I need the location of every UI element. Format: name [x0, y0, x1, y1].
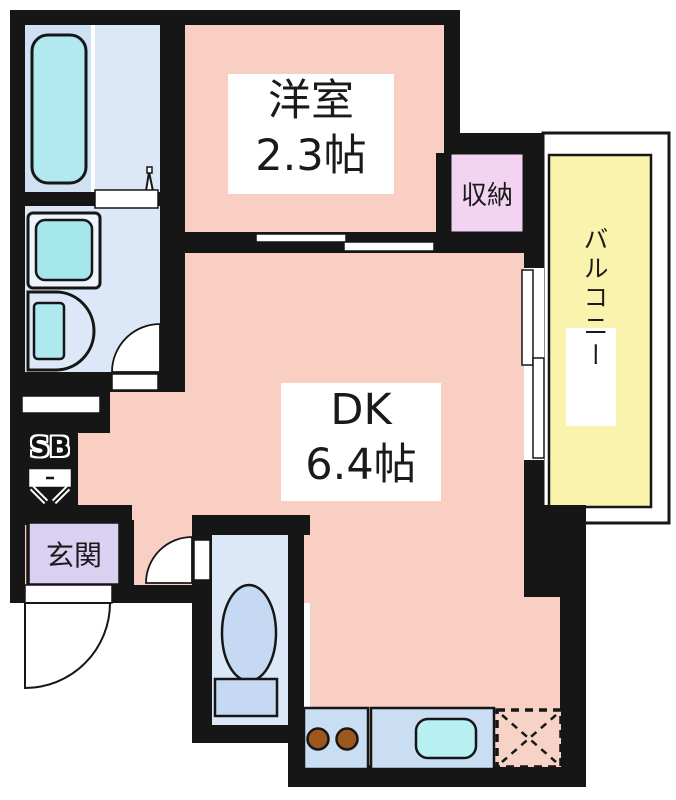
toilet-bowl [222, 585, 276, 681]
dk-size: 6.4帖 [281, 438, 441, 493]
sliding-door-dk-balcony [522, 268, 544, 460]
dk-label: DK 6.4帖 [281, 383, 441, 501]
kitchen-sink [416, 719, 476, 758]
entrance-label: 玄関 [28, 522, 120, 585]
balcony-label: バルコニー [576, 226, 612, 436]
toilet-door-opening [194, 540, 210, 580]
wall-entrance-bottom [112, 585, 195, 603]
wall-toilet-bottom [192, 725, 310, 743]
closet-label: 収納 [450, 153, 524, 233]
wall-closet-top [444, 133, 544, 153]
wall-closet-left [436, 153, 450, 235]
hall-window [22, 396, 100, 413]
western-room-name: 洋室 [228, 74, 394, 129]
dk-name: DK [281, 383, 441, 438]
wall-bath-right [160, 10, 185, 392]
toilet-tank [215, 679, 277, 716]
washroom-door-opening [112, 374, 158, 390]
stove-burner-left [308, 729, 329, 750]
entrance-door-arc [25, 603, 110, 688]
wall-toilet-right [288, 515, 304, 787]
floorplan-canvas: 洋室 2.3帖 DK 6.4帖 収納 玄関 SB バルコニー [0, 0, 676, 800]
wall-right-lower [560, 595, 586, 787]
washbasin [36, 220, 92, 280]
wall-dk-right-mid [524, 455, 544, 510]
entrance-door-opening [25, 585, 112, 603]
toilet-room [212, 535, 288, 725]
western-room-label: 洋室 2.3帖 [228, 74, 394, 194]
bath-divider-line [91, 25, 95, 192]
laundry-pan-drain [34, 303, 64, 359]
bathtub [32, 35, 86, 183]
refrigerator-space [497, 710, 561, 767]
shoe-box-label: SB [20, 432, 80, 463]
bathroom-door-opening [95, 190, 158, 208]
western-room-size: 2.3帖 [228, 129, 394, 184]
bathroom [25, 25, 160, 192]
stove-burner-right [337, 729, 358, 750]
wall-top [10, 10, 460, 25]
wall-balcony-corner-block [524, 505, 586, 597]
kitchen [304, 708, 561, 769]
